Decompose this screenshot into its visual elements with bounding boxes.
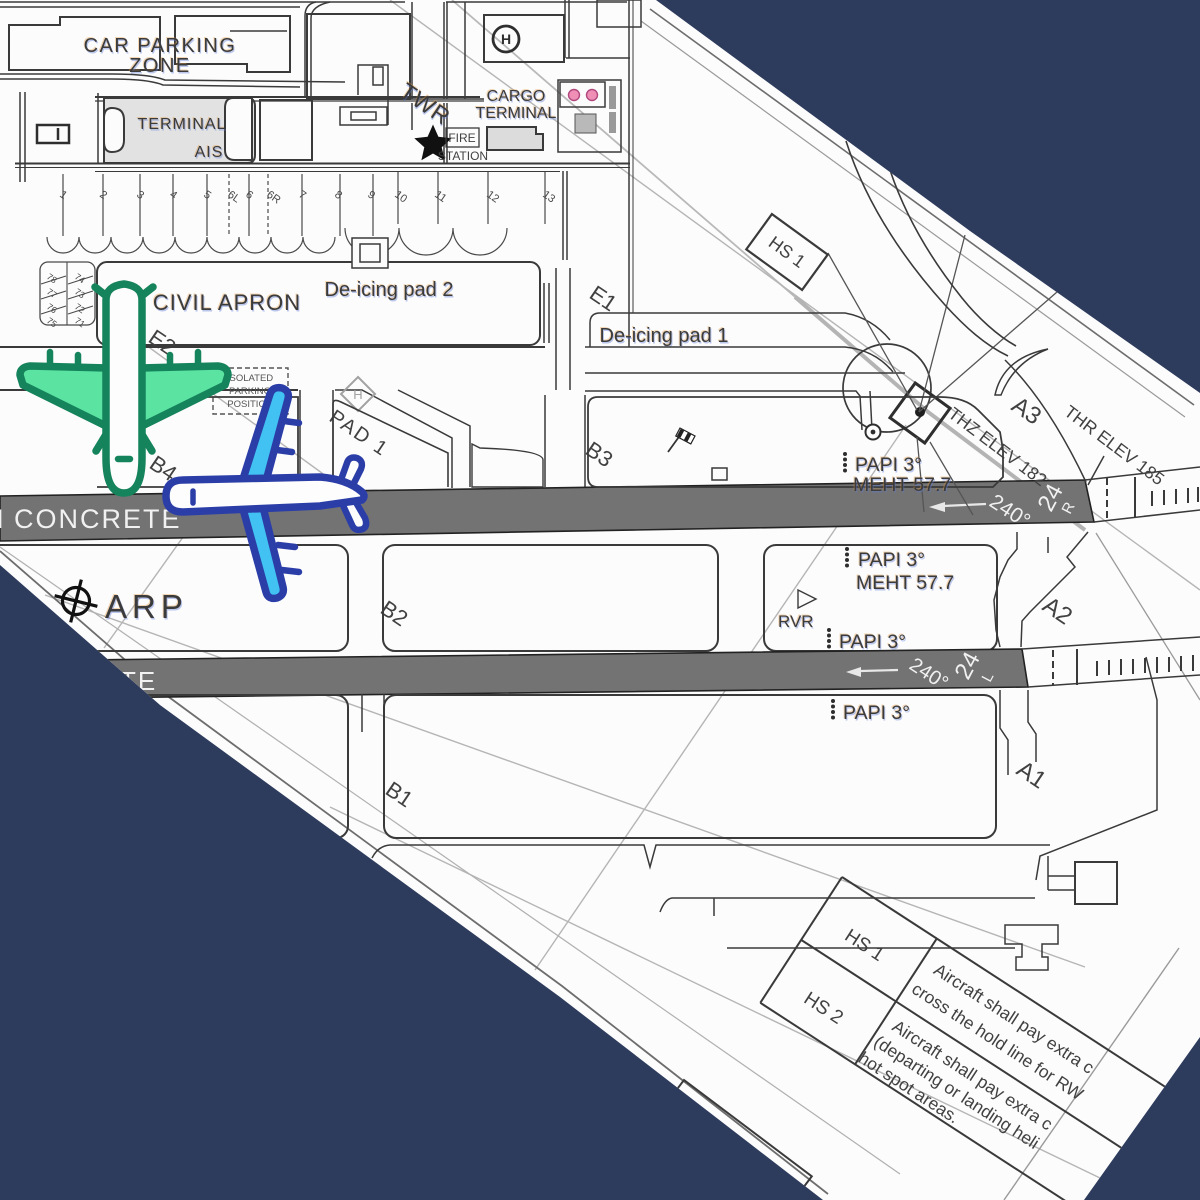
svg-text:CAR PARKING: CAR PARKING <box>84 35 237 57</box>
svg-text:ISOLATED: ISOLATED <box>227 373 273 384</box>
svg-text:STATION: STATION <box>438 149 488 163</box>
svg-text:FIRE: FIRE <box>448 131 475 145</box>
svg-text:TERMINAL: TERMINAL <box>138 116 227 133</box>
svg-text:CIVIL APRON: CIVIL APRON <box>153 290 301 315</box>
svg-text:De-icing pad 1: De-icing pad 1 <box>600 325 729 347</box>
svg-text:ZONE: ZONE <box>129 55 191 77</box>
svg-text:AIS: AIS <box>195 144 224 161</box>
svg-text:PARKING: PARKING <box>229 386 271 397</box>
svg-text:N: N <box>0 504 4 534</box>
svg-text:De-icing pad 2: De-icing pad 2 <box>325 279 454 301</box>
svg-text:CONCRETE: CONCRETE <box>14 504 182 534</box>
svg-text:CARGO: CARGO <box>487 88 546 105</box>
svg-text:PAPI 3°: PAPI 3° <box>858 549 925 571</box>
svg-text:H: H <box>353 387 362 402</box>
svg-text:H: H <box>501 31 511 47</box>
svg-text:RVR: RVR <box>778 612 814 631</box>
svg-text:MEHT 57.7: MEHT 57.7 <box>853 474 951 496</box>
svg-text:ARP: ARP <box>105 588 188 625</box>
svg-text:PAPI 3°: PAPI 3° <box>855 454 922 476</box>
svg-text:MEHT 57.7: MEHT 57.7 <box>856 572 954 594</box>
svg-text:PAPI 3°: PAPI 3° <box>843 702 910 724</box>
svg-text:TERMINAL: TERMINAL <box>476 105 557 122</box>
